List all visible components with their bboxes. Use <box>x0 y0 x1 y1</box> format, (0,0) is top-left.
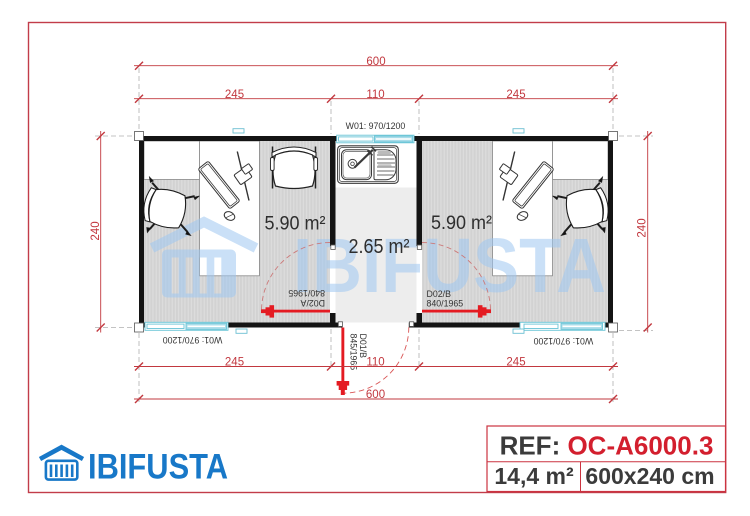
svg-text:W01: 970/1200: W01: 970/1200 <box>346 121 406 131</box>
svg-text:D02/B: D02/B <box>427 289 452 299</box>
svg-text:245: 245 <box>225 356 244 368</box>
svg-text:600: 600 <box>366 389 385 401</box>
svg-text:110: 110 <box>366 89 384 101</box>
svg-text:600: 600 <box>366 56 385 68</box>
svg-text:W01: 970/1200: W01: 970/1200 <box>163 335 223 345</box>
svg-text:2.65 m²: 2.65 m² <box>349 236 410 258</box>
svg-text:245: 245 <box>506 356 525 368</box>
svg-text:14,4 m²: 14,4 m² <box>494 463 574 489</box>
svg-text:245: 245 <box>225 89 244 101</box>
svg-text:245: 245 <box>506 89 525 101</box>
svg-text:W01: 970/1200: W01: 970/1200 <box>533 336 593 346</box>
svg-text:845/1965: 845/1965 <box>349 334 359 371</box>
svg-text:110: 110 <box>366 356 384 368</box>
svg-text:600x240 cm: 600x240 cm <box>585 463 714 489</box>
svg-text:840/1965: 840/1965 <box>288 288 325 298</box>
svg-text:IBIFUSTA: IBIFUSTA <box>88 447 228 487</box>
svg-text:D02/A: D02/A <box>300 298 325 308</box>
svg-text:240: 240 <box>90 221 102 240</box>
svg-text:840/1965: 840/1965 <box>427 299 464 309</box>
svg-text:5.90 m²: 5.90 m² <box>265 214 327 235</box>
svg-text:REF: OC-A6000.3: REF: OC-A6000.3 <box>500 430 714 460</box>
svg-text:240: 240 <box>636 218 648 237</box>
svg-text:5.90 m²: 5.90 m² <box>431 213 493 234</box>
